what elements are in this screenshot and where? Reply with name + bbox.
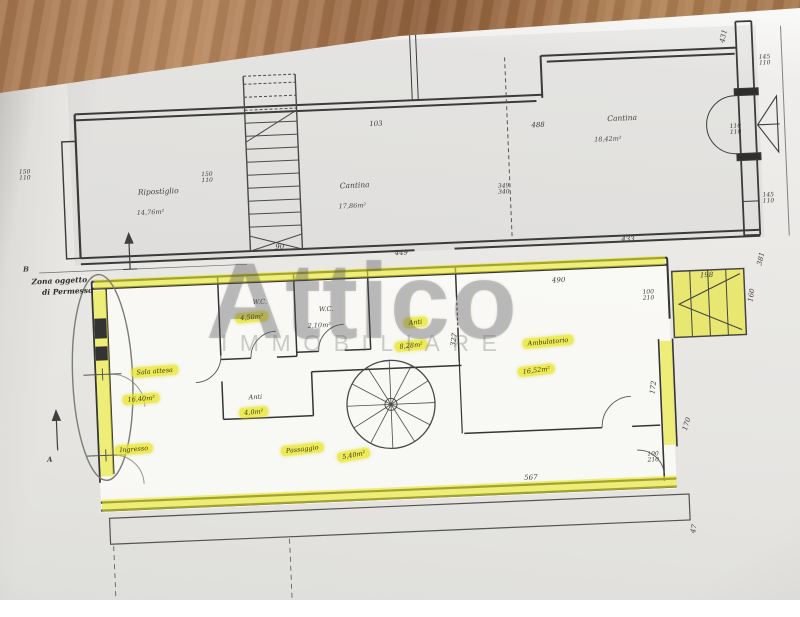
photo-vignette [0,0,800,600]
floorplan-photo: 1061 103 488 431 145 110 110 110 145 110… [0,0,800,600]
